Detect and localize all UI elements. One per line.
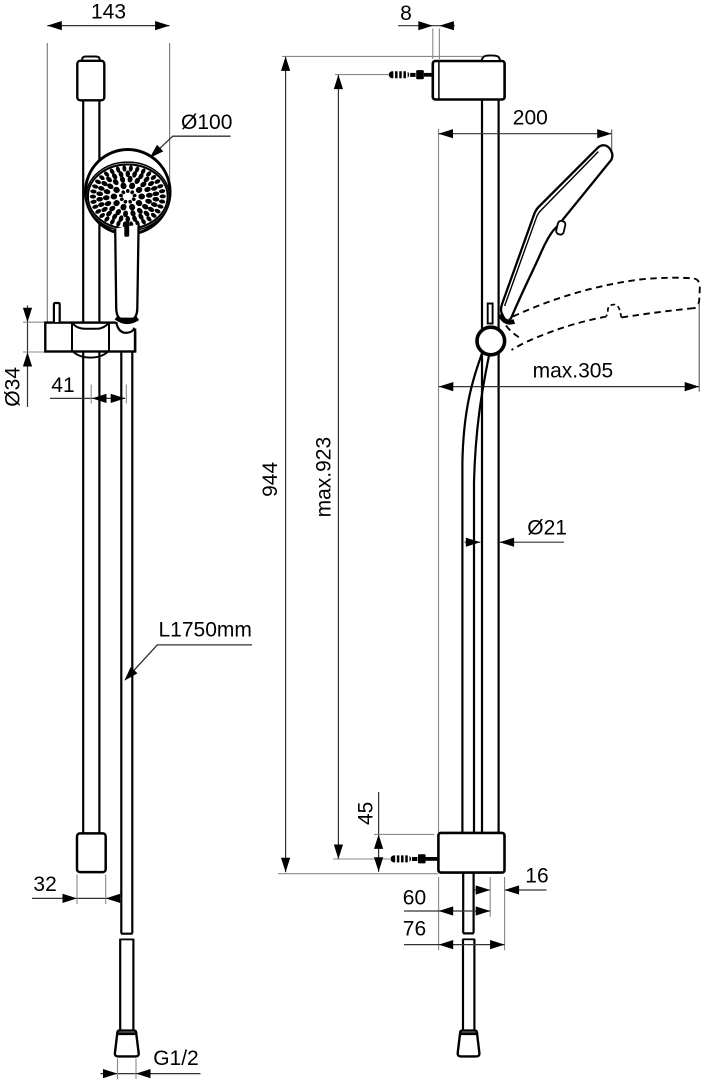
svg-text:76: 76 <box>403 917 426 940</box>
svg-text:16: 16 <box>525 865 548 888</box>
svg-text:Ø100: Ø100 <box>181 111 232 134</box>
svg-text:200: 200 <box>513 107 548 130</box>
svg-text:Ø34: Ø34 <box>2 367 25 407</box>
svg-text:143: 143 <box>91 0 126 23</box>
svg-text:L1750mm: L1750mm <box>159 618 252 641</box>
svg-text:Ø21: Ø21 <box>527 517 567 540</box>
svg-text:32: 32 <box>33 873 56 896</box>
svg-text:45: 45 <box>354 802 377 825</box>
svg-text:60: 60 <box>403 887 426 910</box>
svg-text:8: 8 <box>400 2 412 25</box>
svg-text:max.923: max.923 <box>312 437 335 518</box>
svg-text:944: 944 <box>259 462 282 497</box>
svg-text:max.305: max.305 <box>533 360 614 383</box>
svg-text:G1/2: G1/2 <box>153 1047 199 1070</box>
svg-text:41: 41 <box>51 374 74 397</box>
